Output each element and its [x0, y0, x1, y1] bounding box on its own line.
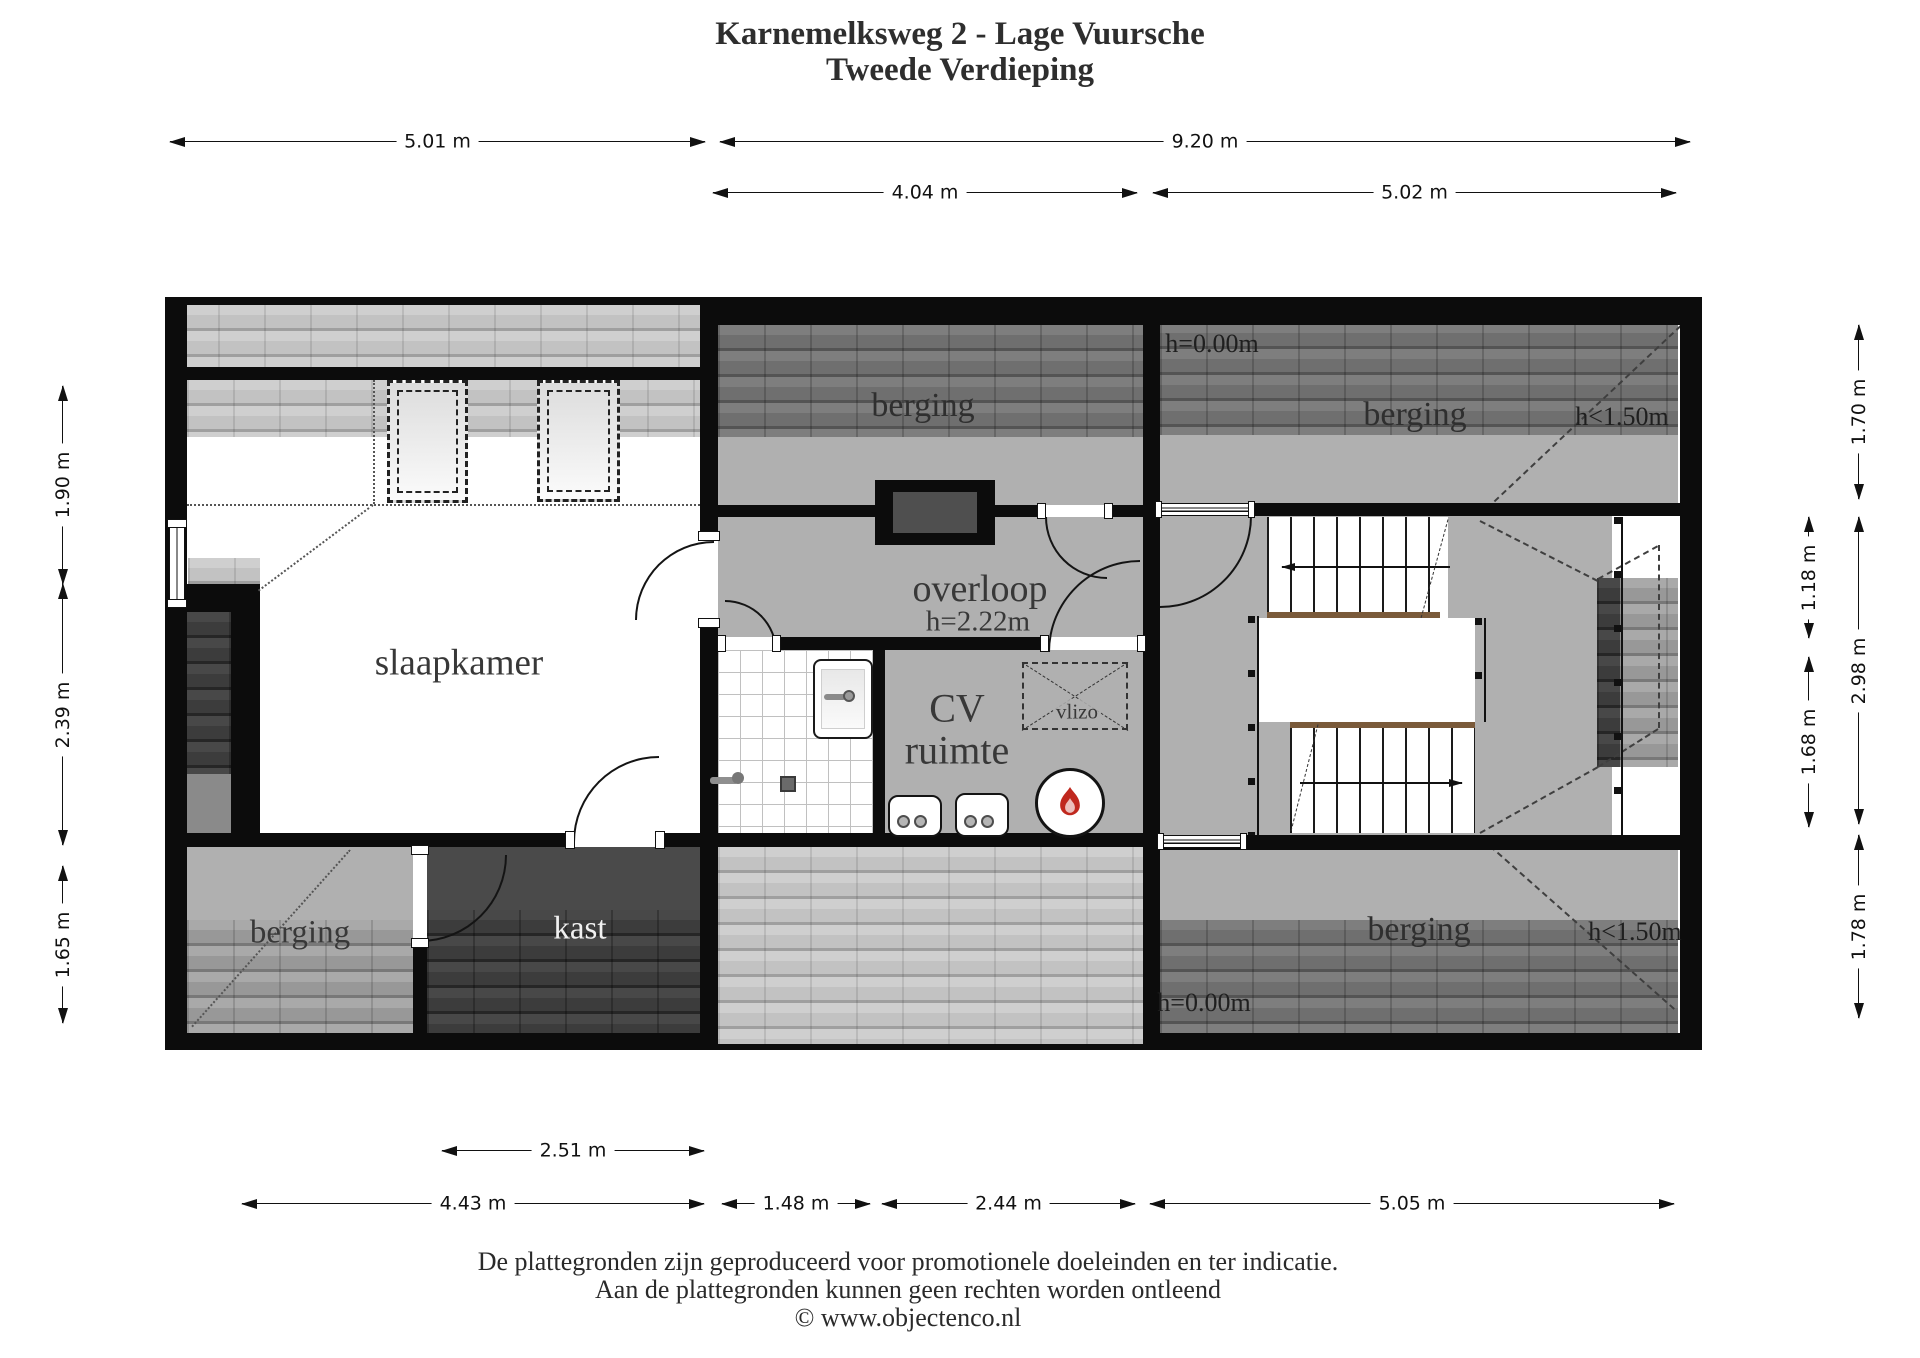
dimension-label: 1.48 m — [755, 1193, 838, 1215]
dimension-top-left: 5.01 m — [170, 141, 705, 142]
dimension-label: 1.78 m — [1848, 885, 1870, 968]
drain-icon — [780, 776, 796, 792]
height-note: h=0.00m — [1157, 988, 1250, 1018]
dimension-bottom-3: 2.44 m — [882, 1203, 1135, 1204]
door-frame-post — [1104, 503, 1113, 519]
wall — [165, 833, 573, 847]
sightline-roofpatch-vertical — [1658, 545, 1660, 728]
door-frame-post — [1037, 503, 1046, 519]
height-note: h<1.50m — [1575, 402, 1668, 432]
chimney-flue — [893, 492, 977, 533]
ceiling-height-note: h=2.22m — [926, 606, 1030, 639]
door-frame-post — [698, 531, 720, 541]
dimension-right-inner-1: 1.18 m — [1808, 517, 1809, 638]
window-frame-post — [167, 519, 187, 528]
flame-icon — [1057, 787, 1083, 819]
wall — [187, 367, 712, 380]
wall — [1143, 297, 1160, 1050]
door-frame-post — [772, 635, 781, 652]
dimension-top-middle-2: 5.02 m — [1153, 192, 1676, 193]
boiler-vessel — [955, 793, 1009, 837]
dimension-label: 2.39 m — [52, 673, 74, 756]
stairwell-void — [1257, 618, 1475, 722]
window-frame-post — [167, 599, 187, 608]
wall — [873, 650, 885, 833]
wall — [413, 940, 427, 1050]
door-frame-post — [698, 618, 720, 628]
door-frame-post — [1248, 501, 1255, 518]
wall — [712, 297, 1702, 325]
dimension-top-right: 9.20 m — [720, 141, 1690, 142]
dimension-label: 4.04 m — [884, 182, 967, 204]
dimension-label: 1.18 m — [1798, 536, 1820, 619]
door-frame-post — [411, 845, 429, 855]
dimension-label: 5.05 m — [1371, 1193, 1454, 1215]
window — [1162, 835, 1242, 848]
room-label-berging-top-middle: berging — [871, 387, 974, 425]
door-frame-post — [717, 635, 726, 652]
door-frame-post — [565, 831, 575, 849]
void-railing-right — [1612, 517, 1623, 835]
floor-berging-top-right — [1160, 435, 1678, 505]
dimension-label: 5.01 m — [396, 131, 479, 153]
skylight-inner-frame — [397, 390, 458, 493]
vessel-port-icon — [981, 815, 994, 828]
door-opening — [1045, 505, 1105, 517]
room-label-berging-top-right: berging — [1363, 396, 1466, 434]
left-structure-floor — [183, 774, 231, 834]
sightline-slaapkamer-vertical — [373, 380, 375, 504]
footer-copyright: © www.objectenco.nl — [400, 1304, 1416, 1332]
roof-strip-left-upper — [172, 305, 712, 367]
vessel-port-icon — [914, 815, 927, 828]
dimension-left-1: 1.90 m — [62, 386, 63, 584]
dimension-right-outer-3: 1.78 m — [1858, 835, 1859, 1018]
stair-railing-right — [1475, 618, 1486, 722]
door-frame-post — [1040, 635, 1049, 652]
door-frame-post — [411, 938, 429, 948]
skylight — [387, 380, 468, 503]
dimension-right-outer-1: 1.70 m — [1858, 325, 1859, 499]
room-label-berging-bottom-left: berging — [250, 915, 350, 952]
stair-flight-lower — [1290, 728, 1475, 833]
wall — [1160, 1033, 1702, 1050]
dimension-label: 5.02 m — [1373, 182, 1456, 204]
dimension-left-2: 2.39 m — [62, 584, 63, 845]
shower-head-icon — [732, 772, 744, 784]
door-swing-arc — [635, 541, 714, 620]
roof-patch-left-structure — [188, 558, 260, 584]
page-title: Karnemelksweg 2 - Lage Vuursche — [0, 16, 1920, 53]
window-frame-post — [1240, 833, 1247, 850]
wall — [1680, 297, 1702, 1050]
vessel-port-icon — [964, 815, 977, 828]
door-frame-post — [1137, 635, 1146, 652]
height-note: h<1.50m — [1588, 917, 1681, 947]
dimension-label: 1.68 m — [1798, 701, 1820, 784]
skylight — [537, 380, 620, 502]
wall — [165, 297, 712, 305]
dimension-bottom-kast: 2.51 m — [442, 1150, 704, 1151]
wall — [712, 1044, 1160, 1050]
dimension-label: 1.70 m — [1848, 371, 1870, 454]
dimension-label: 2.44 m — [967, 1193, 1050, 1215]
vlizo-label: vlizo — [1053, 700, 1101, 725]
vessel-port-icon — [897, 815, 910, 828]
room-label-kast: kast — [553, 911, 606, 948]
wall — [775, 637, 1048, 650]
floorplan-canvas: Karnemelksweg 2 - Lage Vuursche Tweede V… — [0, 0, 1920, 1358]
wall — [165, 1033, 712, 1050]
sightline-slaapkamer-diagonal — [258, 504, 374, 591]
footer-line-1: De plattegronden zijn geproduceerd voor … — [400, 1248, 1416, 1276]
cv-boiler — [1035, 768, 1105, 838]
wall — [700, 297, 718, 540]
room-label-slaapkamer: slaapkamer — [375, 642, 543, 685]
window-frame-post — [1157, 833, 1164, 850]
boiler-vessel — [888, 795, 942, 837]
sightline-slaapkamer-horizontal — [187, 504, 712, 506]
dimension-label: 1.65 m — [52, 903, 74, 986]
door-leaf — [1160, 503, 1250, 516]
footer-line-2: Aan de plattegronden kunnen geen rechten… — [400, 1276, 1416, 1304]
door-frame-post — [655, 831, 665, 849]
floor-berging-bottom-right — [1160, 850, 1678, 920]
footer-disclaimer: De plattegronden zijn geproduceerd voor … — [400, 1248, 1416, 1332]
door-frame-post — [1155, 501, 1162, 518]
dimension-label: 1.90 m — [52, 444, 74, 527]
room-label-cv: CV — [929, 685, 985, 732]
height-note: h=0.00m — [1165, 329, 1258, 359]
dimension-bottom-1: 4.43 m — [242, 1203, 704, 1204]
floor-berging-bottom-left — [187, 847, 413, 920]
wall — [165, 297, 187, 1050]
room-label-overloop: overloop — [912, 567, 1047, 611]
room-label-berging-bottom-right: berging — [1367, 911, 1470, 949]
door-swing-arc — [573, 756, 659, 842]
dimension-right-inner-2: 1.68 m — [1808, 657, 1809, 827]
skylight-inner-frame — [547, 390, 610, 492]
stair-railing-left — [1248, 616, 1259, 835]
stair-direction-arrow-down — [1300, 782, 1462, 784]
dimension-left-3: 1.65 m — [62, 866, 63, 1023]
dimension-top-middle-1: 4.04 m — [713, 192, 1137, 193]
faucet-knob-icon — [843, 690, 855, 702]
wall — [657, 833, 712, 847]
dimension-right-outer-2: 2.98 m — [1858, 517, 1859, 824]
left-structure-roof — [183, 612, 231, 774]
dimension-label: 2.51 m — [532, 1140, 615, 1162]
dimension-bottom-2: 1.48 m — [722, 1203, 870, 1204]
page-subtitle: Tweede Verdieping — [0, 52, 1920, 89]
roof-middle-bottom — [718, 847, 1143, 1046]
dimension-label: 2.98 m — [1848, 629, 1870, 712]
wall — [712, 505, 875, 517]
stair-direction-arrow-up — [1282, 566, 1450, 568]
dimension-bottom-4: 5.05 m — [1150, 1203, 1674, 1204]
room-label-cv-ruimte: ruimte — [905, 727, 1009, 774]
dimension-label: 9.20 m — [1164, 131, 1247, 153]
roof-patch-right-outer — [1620, 578, 1678, 767]
window — [169, 527, 185, 600]
dimension-label: 4.43 m — [432, 1193, 515, 1215]
